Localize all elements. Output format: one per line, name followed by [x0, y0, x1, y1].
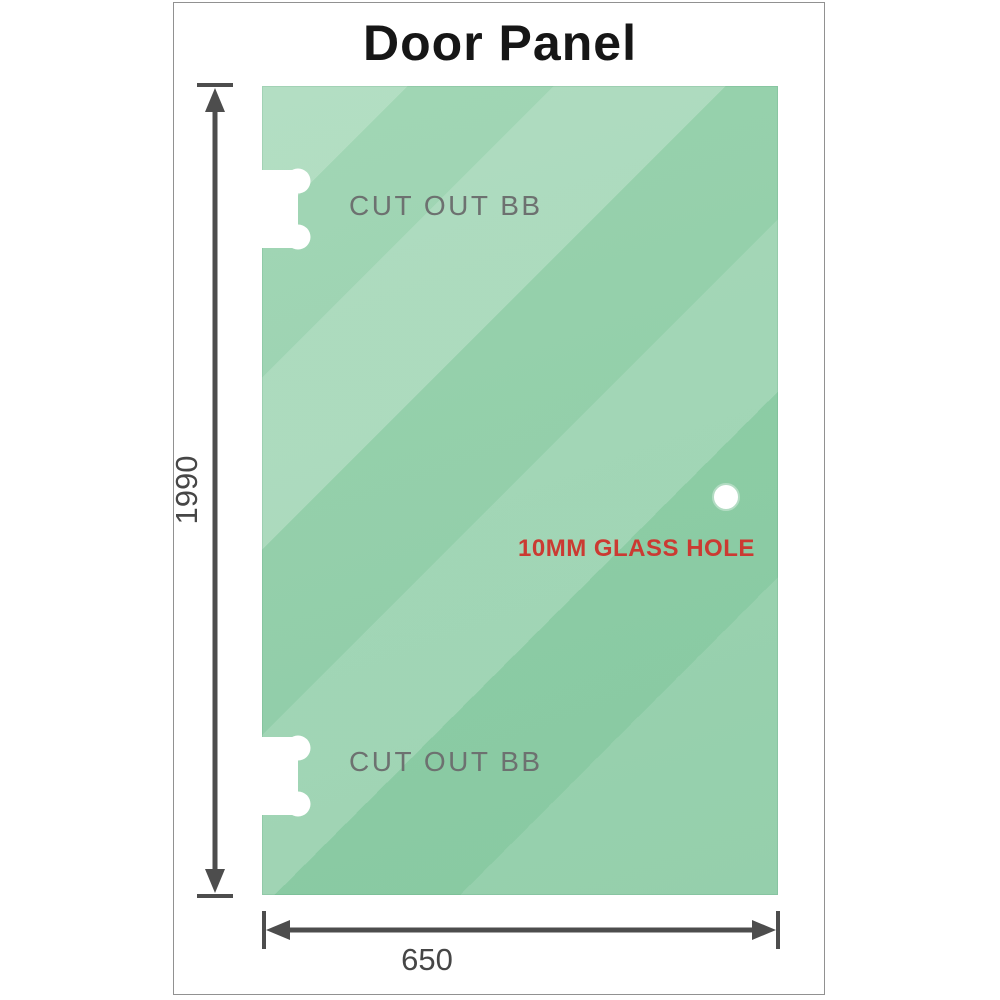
glass-hole-label: 10MM GLASS HOLE — [518, 535, 755, 563]
width-dimension-label: 650 — [401, 942, 453, 978]
top-cutout-label: CUT OUT BB — [349, 190, 543, 222]
diagram-canvas: Door Panel — [0, 0, 1000, 1000]
page-title: Door Panel — [173, 14, 827, 72]
height-dimension-label: 1990 — [169, 456, 205, 525]
bottom-cutout-label: CUT OUT BB — [349, 746, 543, 778]
